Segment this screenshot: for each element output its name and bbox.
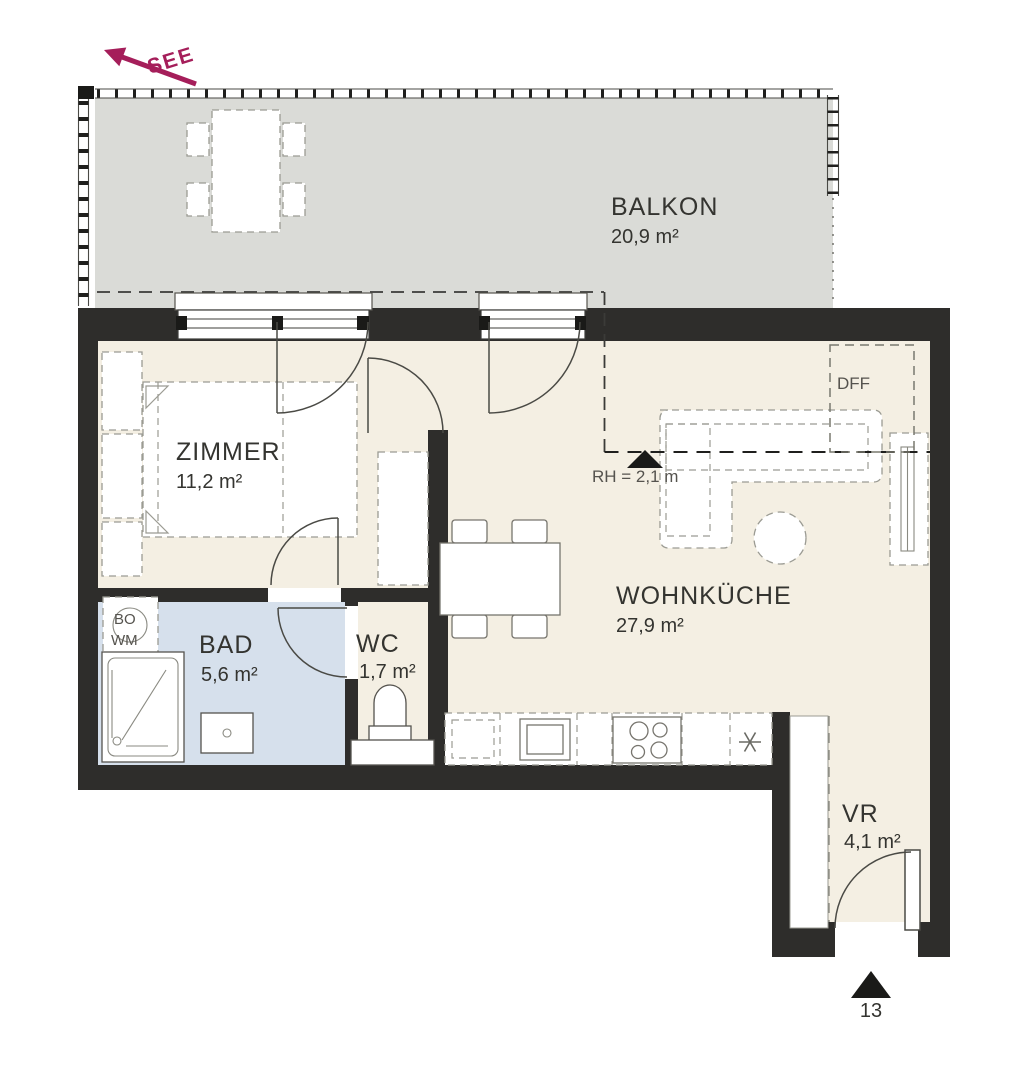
window-living [479,293,587,339]
dining-chair [512,520,547,543]
boiler-label: BO [114,611,136,628]
kitchen-counter [445,713,772,765]
unit-number: 13 [860,1000,882,1022]
service-shaft [351,740,434,765]
balcony [78,86,839,308]
kitchen-sink [520,719,570,760]
bedside-cabinet [102,522,142,576]
room-label-bad: BAD 5,6 m² [199,631,258,686]
toilet [374,685,406,732]
balcony-railing-left [79,99,89,306]
wardrobe [378,452,428,585]
room-height-label: RH = 2,1 m [592,467,678,486]
room-name: WOHNKÜCHE [616,582,792,610]
room-area: 1,7 m² [359,661,416,683]
vr-closet [790,716,828,928]
see-arrow: SEE [104,43,197,84]
room-area: 20,9 m² [611,226,679,248]
railing-corner-post [78,86,94,99]
bedside-cabinet [102,434,142,518]
room-area: 4,1 m² [844,831,901,853]
balcony-chair [187,123,209,156]
window-sill [479,293,587,310]
bad-doorway [268,588,341,602]
balcony-chair [187,183,209,216]
balcony-chair [283,183,305,216]
dff-label: DFF [837,374,870,393]
window-sill [175,293,372,310]
stove [613,717,681,763]
washing-machine-label: WM [111,632,138,649]
room-name: WC [356,630,400,658]
entrance-triangle-icon [851,971,891,998]
floor-plan-drawing: BO WM [0,0,1020,1080]
entrance-marker: 13 [851,971,891,1022]
balcony-chair [283,123,305,156]
vr-elements [790,716,829,928]
room-name: ZIMMER [176,438,281,466]
balcony-table [212,110,280,232]
dining-chair [512,615,547,638]
dining-table [440,543,560,615]
window-zimmer [175,293,372,339]
room-name: BAD [199,631,253,659]
room-area: 5,6 m² [201,664,258,686]
dining-chair [452,615,487,638]
room-name: BALKON [611,193,718,221]
washer-dryer: BO WM [103,597,158,653]
washbasin [201,713,253,753]
bedside-cabinet [102,352,142,430]
room-area: 27,9 m² [616,615,684,637]
floor-plan: BO WM [0,0,1020,1080]
room-name: VR [842,800,879,828]
balcony-railing-top [78,86,833,99]
shower [102,652,184,762]
coffee-table [754,512,806,564]
room-area: 11,2 m² [176,471,243,493]
dining-chair [452,520,487,543]
